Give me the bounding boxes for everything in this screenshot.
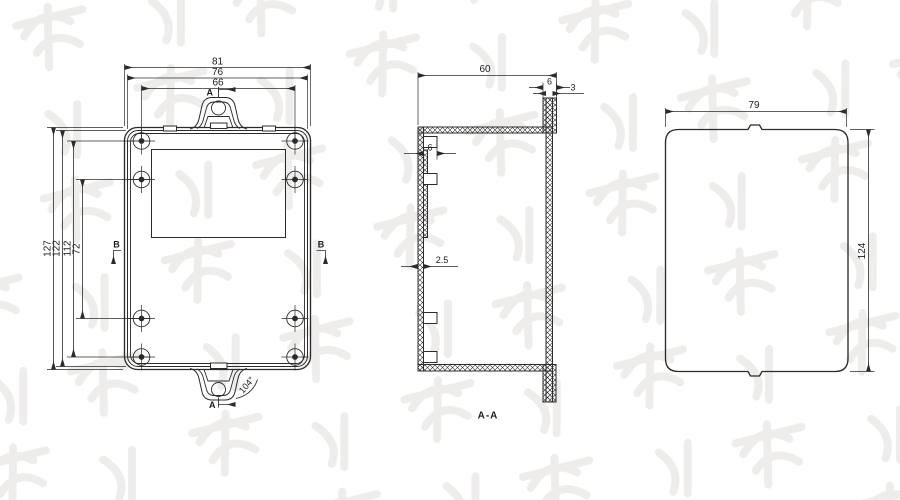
dim-boss-label: 6 [427,143,432,153]
engineering-drawing: 81 76 66 127 122 [0,0,900,500]
top-edge-notch-left [164,126,177,131]
top-edge-notch-right [263,126,276,131]
top-wall-section [418,127,553,133]
dim-height-mid-label: 122 [52,240,63,257]
dim-width-outer-label: 81 [212,57,224,68]
screw-boss [424,174,438,185]
section-b-right-label: B [318,240,325,250]
dim-width-mid-label: 76 [212,67,224,78]
screw-boss [424,352,438,363]
dim-sidewall-label: 2.5 [436,255,449,265]
dim-rim-label: 6 [547,77,552,87]
dim-hole-span-h-label: 66 [212,78,224,89]
dim-side-height-label: 124 [857,242,868,259]
window-recess-lining [424,150,428,238]
dim-side-width-label: 79 [748,100,760,111]
dim-wall-label: 3 [570,83,575,93]
section-b-left-label: B [113,240,120,250]
tab-notch-top [211,123,228,129]
section-a-bottom-label: A [209,400,216,410]
watermark [0,0,900,500]
left-wall-section [418,127,424,371]
screw-boss [424,313,438,324]
dim-section-width-label: 60 [479,64,491,75]
tab-notch-bottom [211,363,228,369]
bottom-wall-section [418,365,553,372]
right-wall-section [546,98,553,402]
section-a-top-label: A [207,88,214,98]
drawing-canvas: 81 76 66 127 122 [0,0,900,500]
dim-hole-span-v-inner-label: 72 [72,243,83,255]
section-title: A-A [478,411,499,422]
